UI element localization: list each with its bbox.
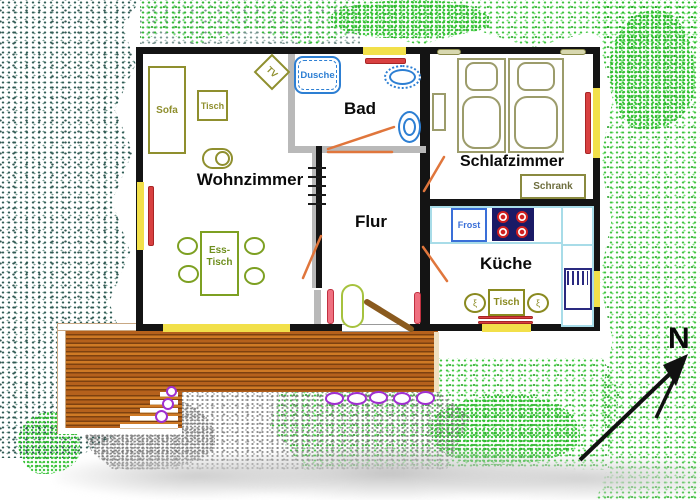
door-swing-schlafzimmer [424,157,444,191]
compass-north-label: N [668,322,690,356]
entrance-door [367,302,411,329]
compass-arrow [580,354,688,460]
door-swing-wohnzimmer [303,236,321,278]
floor-plan-canvas: Sofa Tisch TV Ess- Tisch Dusche Schrank … [0,0,700,500]
plan-overlay [0,0,700,500]
door-swing-bad [328,127,394,149]
door-swing-kueche [423,247,447,281]
radiator-ticks [308,168,326,204]
